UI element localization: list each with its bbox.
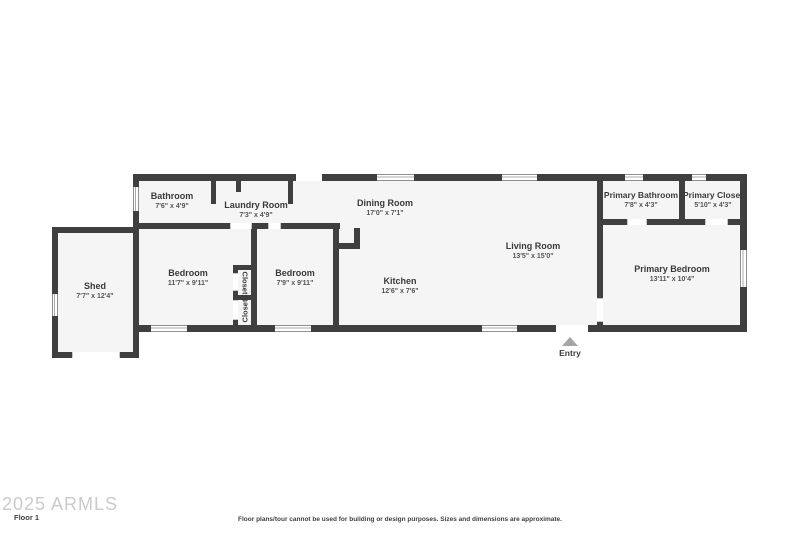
closet-door-opening (233, 300, 238, 320)
room-name: Kitchen (381, 276, 418, 287)
entry-door-opening (556, 325, 588, 332)
wall (281, 223, 340, 229)
room-label-kitchen: Kitchen 12'6" x 7'6" (381, 276, 418, 296)
wall (139, 325, 151, 332)
window (52, 294, 58, 316)
closet-label-top: Closet (241, 272, 250, 295)
door-opening (627, 219, 647, 225)
entry-arrow-icon (562, 337, 578, 346)
window (692, 174, 706, 181)
wall (537, 174, 625, 181)
wall (728, 219, 740, 225)
room-name: Primary Bedroom (634, 264, 710, 275)
floor-plan-page: Bathroom 7'6" x 4'9" Laundry Room 7'3" x… (0, 0, 800, 533)
room-dimensions: 12'6" x 7'6" (381, 287, 418, 296)
room-label-primary-bedroom: Primary Bedroom 13'11" x 10'4" (634, 264, 710, 284)
closet-wall (233, 265, 238, 273)
wall (288, 181, 293, 204)
closet-door-opening (233, 273, 238, 291)
window (625, 174, 643, 181)
room-dimensions: 13'11" x 10'4" (634, 275, 710, 284)
disclaimer-text: Floor plans/tour cannot be used for buil… (0, 516, 800, 523)
shed-door-opening (72, 352, 120, 358)
wall (133, 174, 139, 187)
room-label-dining-room: Dining Room 17'0" x 7'1" (357, 198, 413, 218)
room-label-primary-closet: Primary Closet 5'10" x 4'3" (683, 190, 743, 210)
room-dimensions: 11'7" x 9'11" (168, 279, 208, 288)
wall (414, 174, 502, 181)
wall (517, 325, 556, 332)
shed-wall (52, 352, 72, 358)
window (502, 174, 537, 181)
wall (251, 229, 257, 325)
room-name: Dining Room (357, 198, 413, 209)
room-label-bedroom-2: Bedroom 7'9" x 9'11" (275, 268, 315, 288)
room-dimensions: 7'3" x 4'9" (224, 211, 288, 220)
room-label-bedroom-1: Bedroom 11'7" x 9'11" (168, 268, 208, 288)
wall (588, 325, 747, 332)
room-name: Shed (76, 281, 113, 292)
wall (311, 325, 482, 332)
room-dimensions: 13'5" x 15'0" (506, 252, 561, 261)
room-name: Primary Closet (683, 190, 743, 201)
room-label-primary-bathroom: Primary Bathroom 7'8" x 4'3" (604, 190, 678, 210)
wall-opening (296, 174, 322, 181)
closet-wall (233, 320, 238, 325)
wall (133, 174, 296, 181)
wall (597, 322, 603, 325)
wall (603, 219, 627, 225)
window (377, 174, 414, 181)
wall (236, 181, 241, 192)
room-label-shed: Shed 7'7" x 12'4" (76, 281, 113, 301)
shed-wall (52, 233, 58, 294)
entry-label: Entry (559, 348, 581, 358)
window (482, 325, 517, 332)
room-name: Bedroom (168, 268, 208, 279)
room-name: Laundry Room (224, 200, 288, 211)
wall (139, 223, 230, 229)
wall (647, 219, 705, 225)
window (133, 187, 139, 211)
room-dimensions: 5'10" x 4'3" (683, 201, 743, 210)
closet-label-bottom: Closet (241, 300, 250, 323)
door-opening (597, 298, 603, 322)
armls-watermark: 2025 ARMLS (2, 494, 118, 515)
wall (187, 325, 275, 332)
room-dimensions: 7'7" x 12'4" (76, 292, 113, 301)
window (740, 250, 747, 287)
window (275, 325, 311, 332)
wall (597, 181, 603, 298)
room-label-bathroom: Bathroom 7'6" x 4'9" (151, 191, 194, 211)
door-opening (230, 223, 252, 229)
room-dimensions: 7'8" x 4'3" (604, 201, 678, 210)
shed-wall (52, 227, 133, 233)
door-opening (705, 219, 728, 225)
room-dimensions: 7'6" x 4'9" (151, 202, 194, 211)
room-name: Bathroom (151, 191, 194, 202)
room-dimensions: 7'9" x 9'11" (275, 279, 315, 288)
room-dimensions: 17'0" x 7'1" (357, 209, 413, 218)
room-name: Primary Bathroom (604, 190, 678, 201)
wall (322, 174, 377, 181)
wall (211, 181, 216, 204)
wall (706, 174, 747, 181)
wall (643, 174, 692, 181)
room-label-laundry-room: Laundry Room 7'3" x 4'9" (224, 200, 288, 220)
wall (133, 211, 139, 358)
door-opening (268, 223, 281, 229)
shed-wall (120, 352, 139, 358)
wall (740, 287, 747, 325)
room-name: Bedroom (275, 268, 315, 279)
room-label-living-room: Living Room 13'5" x 15'0" (506, 241, 561, 261)
room-name: Living Room (506, 241, 561, 252)
window (151, 325, 187, 332)
shed-wall (52, 316, 58, 352)
wall (354, 228, 360, 249)
